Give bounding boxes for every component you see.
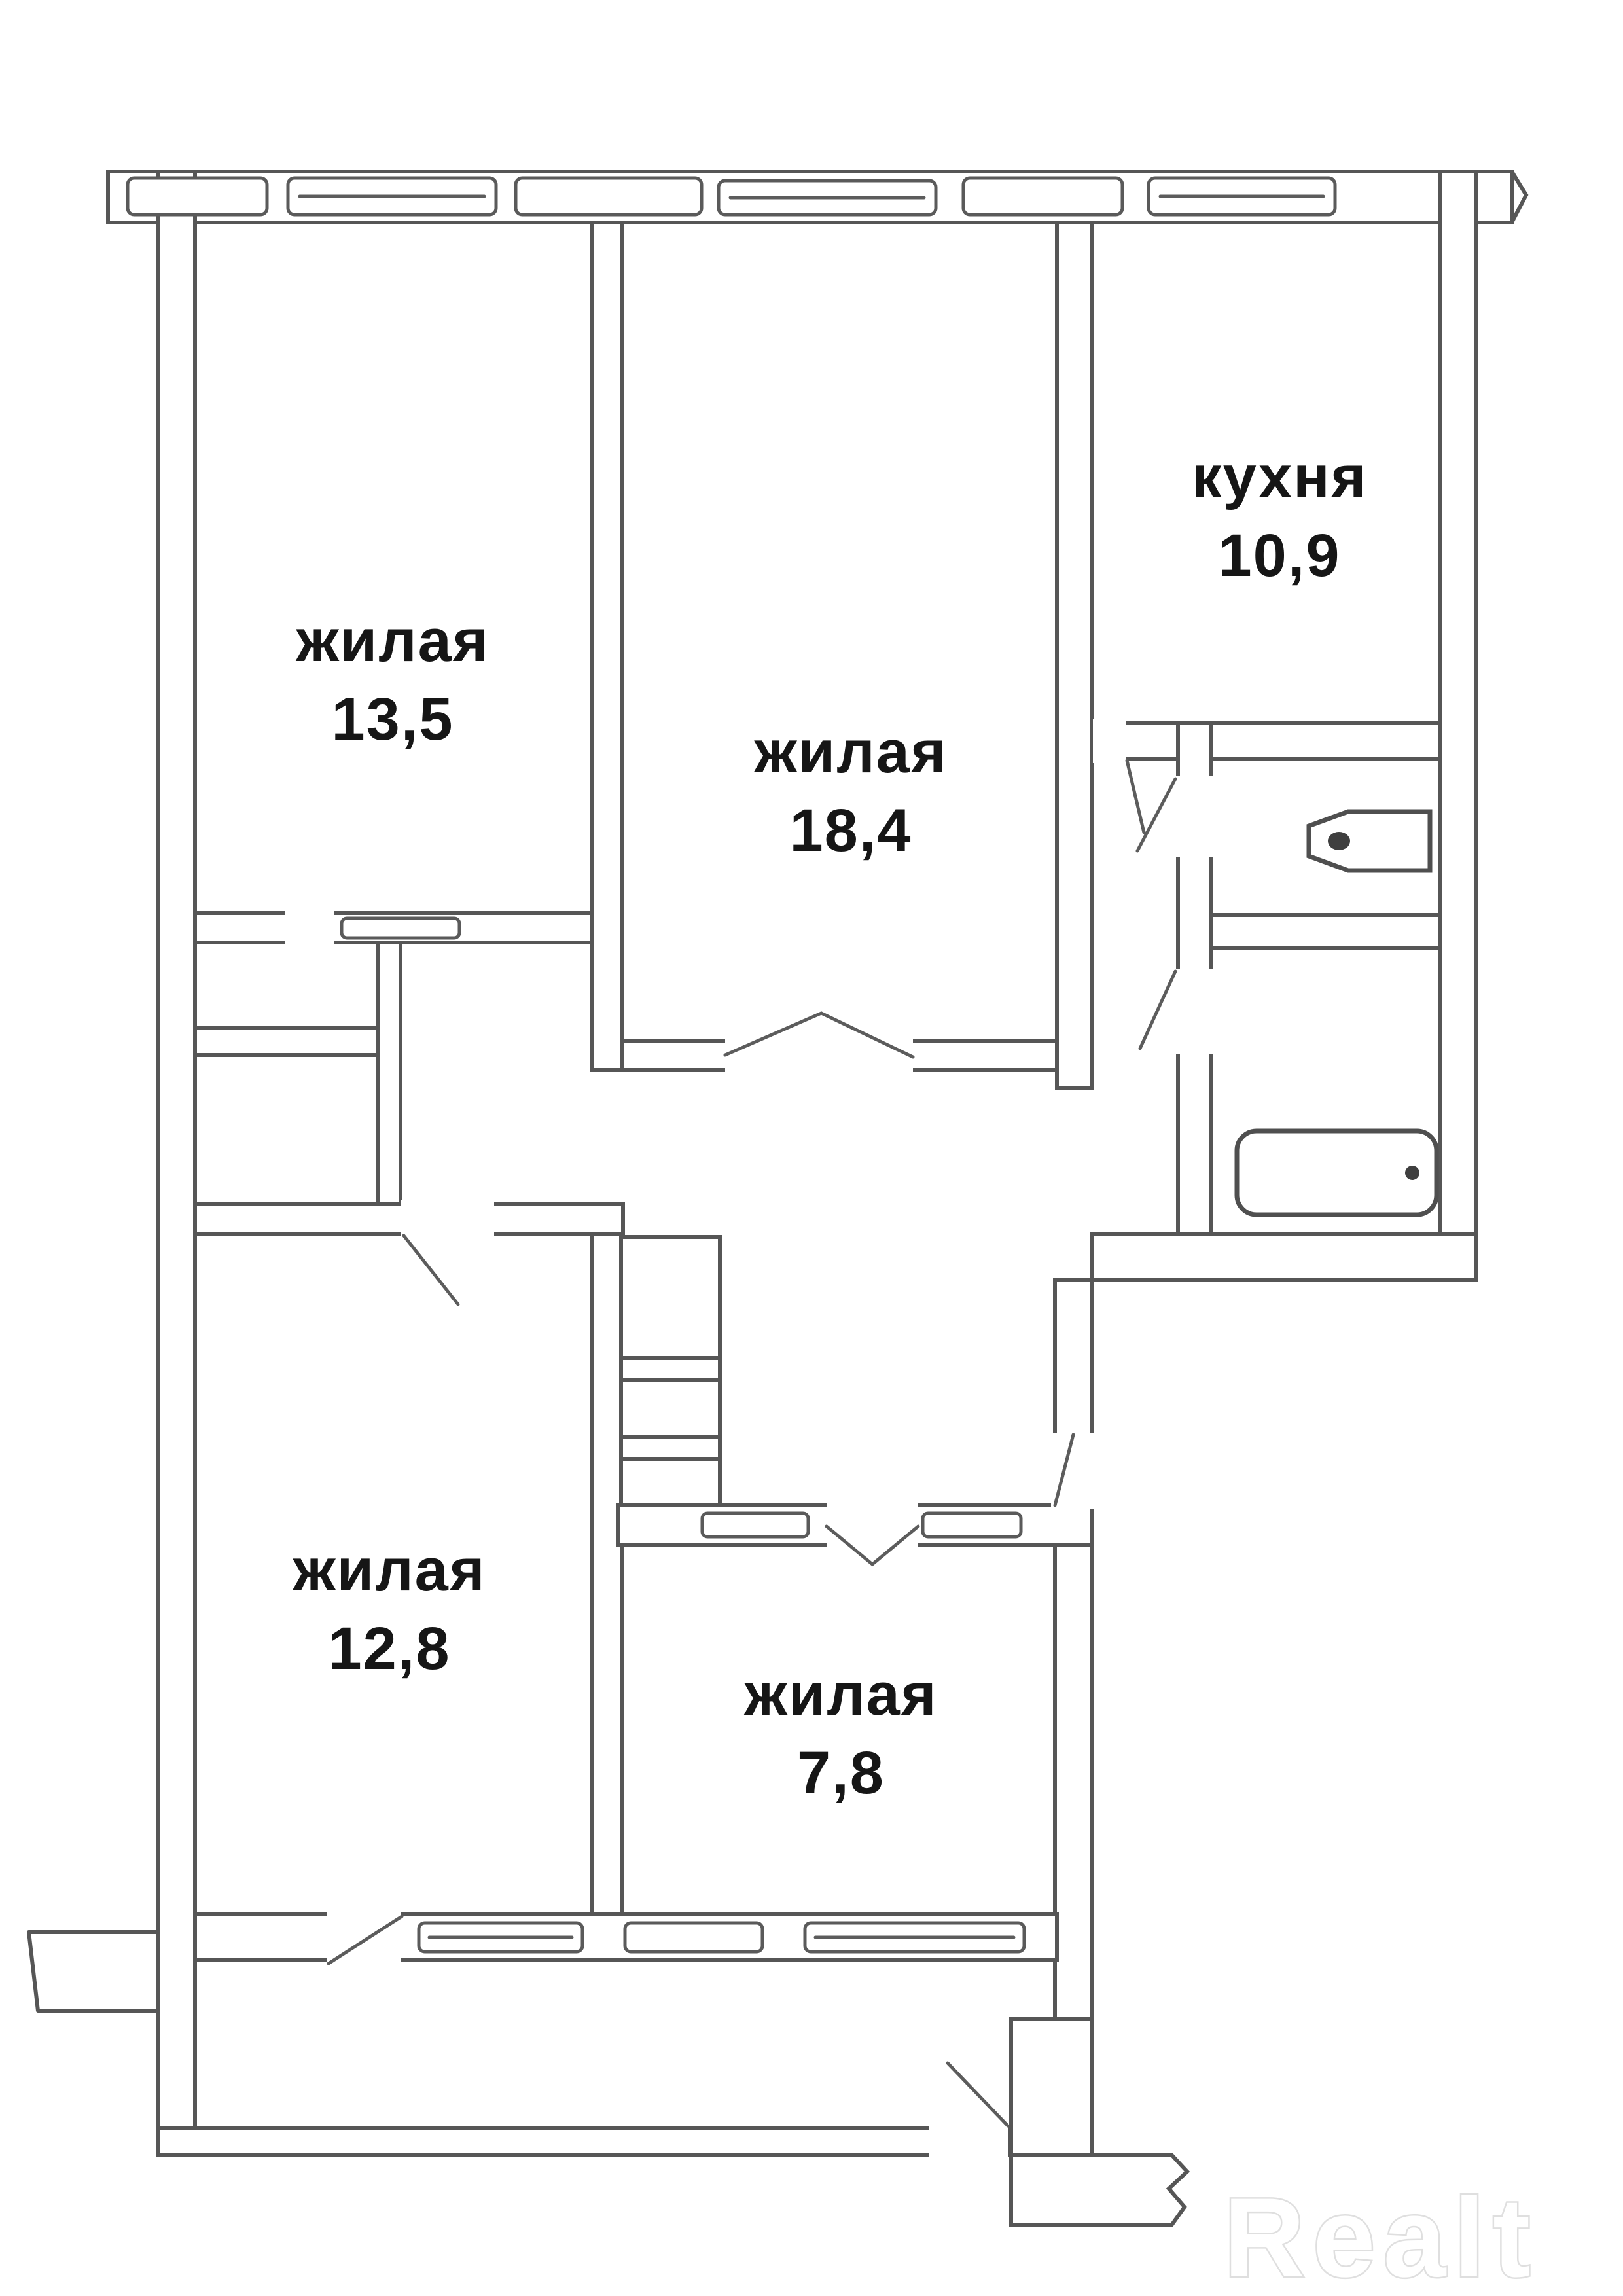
room-13_5-name: жилая	[295, 607, 489, 674]
hall-closet-divider-2	[621, 1437, 720, 1459]
wall-slot-2	[923, 1513, 1021, 1537]
window-bottom-2	[625, 1923, 762, 1952]
bottom-strip-wall	[158, 2128, 1008, 2155]
kitchen-area: 10,9	[1218, 522, 1340, 589]
left-exterior-wall	[158, 171, 195, 2155]
room-7_8-name: жилая	[743, 1661, 937, 1728]
top-right-corner-jog	[1512, 171, 1526, 223]
toilet-icon	[1309, 812, 1430, 870]
kitchen-left-wall	[1057, 223, 1092, 1088]
partition-13_5-18_4	[592, 223, 622, 1070]
room-12_8-name: жилая	[292, 1537, 486, 1604]
window-top-1	[128, 178, 267, 215]
entry-vestibule	[1011, 2155, 1171, 2225]
wall-break-symbol	[1169, 2155, 1187, 2225]
door-leaf-wc	[1137, 779, 1175, 851]
partition-12_8-7_8	[592, 1234, 622, 1914]
closet-side-wall	[378, 942, 401, 1234]
wc-bath-divider	[1211, 915, 1440, 948]
scanned-floor-plan-page: { "plan": { "watermark": "Realt", "rooms…	[0, 0, 1623, 2296]
room-12_8-area: 12,8	[328, 1615, 450, 1682]
balcony-tab	[29, 1932, 158, 2011]
room-7_8-area: 7,8	[797, 1740, 885, 1806]
fixtures-layer	[1237, 812, 1436, 1215]
kitchen-name: кухня	[1192, 444, 1368, 511]
door-leaf-room-12_8	[404, 1236, 458, 1304]
right-exterior-wall	[1440, 171, 1476, 1280]
closet-door-slot	[342, 918, 459, 938]
window-top-5	[963, 178, 1122, 215]
room-18_4-name: жилая	[753, 719, 947, 785]
entry-channel-wall	[1011, 2019, 1092, 2155]
room-13_5-area: 13,5	[331, 686, 454, 753]
door-leaf-entry	[948, 2063, 1008, 2126]
door-leaf-bath	[1140, 971, 1175, 1049]
realt-watermark: Realt	[1224, 2175, 1539, 2296]
bathtub-icon	[1237, 1131, 1436, 1215]
kitchen-bottom-wall	[1092, 723, 1440, 759]
room-18_4-area: 18,4	[789, 797, 912, 864]
floor-plan-image: жилая 13,5 жилая 18,4 кухня 10,9 жилая 1…	[0, 0, 1623, 2296]
closet-divider	[195, 1028, 378, 1055]
window-top-3	[516, 178, 702, 215]
wall-slot-1	[702, 1513, 808, 1537]
hall-closet-divider-1	[621, 1358, 720, 1380]
door-leaf-kitchen	[1127, 761, 1144, 833]
bathroom-bottom-wall	[1092, 1234, 1476, 1280]
